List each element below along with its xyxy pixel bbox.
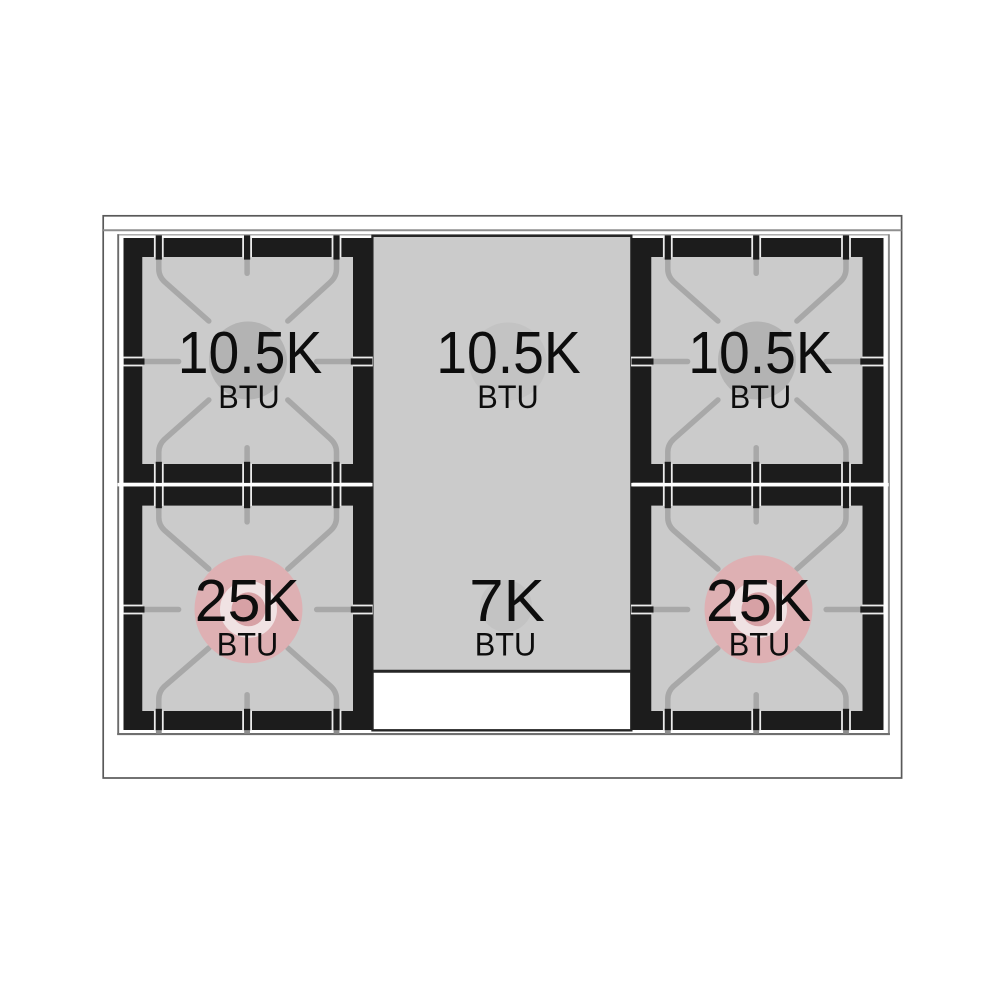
svg-text:10.5K: 10.5K [178, 319, 323, 386]
svg-text:BTU: BTU [475, 626, 537, 662]
svg-text:10.5K: 10.5K [436, 319, 581, 386]
svg-text:25K: 25K [195, 567, 300, 634]
svg-text:BTU: BTU [729, 626, 791, 662]
svg-text:BTU: BTU [477, 379, 539, 415]
svg-text:10.5K: 10.5K [688, 319, 833, 386]
svg-text:BTU: BTU [217, 626, 279, 662]
svg-text:25K: 25K [706, 567, 811, 634]
svg-text:BTU: BTU [730, 379, 792, 415]
svg-text:7K: 7K [469, 567, 545, 634]
svg-text:BTU: BTU [218, 379, 280, 415]
